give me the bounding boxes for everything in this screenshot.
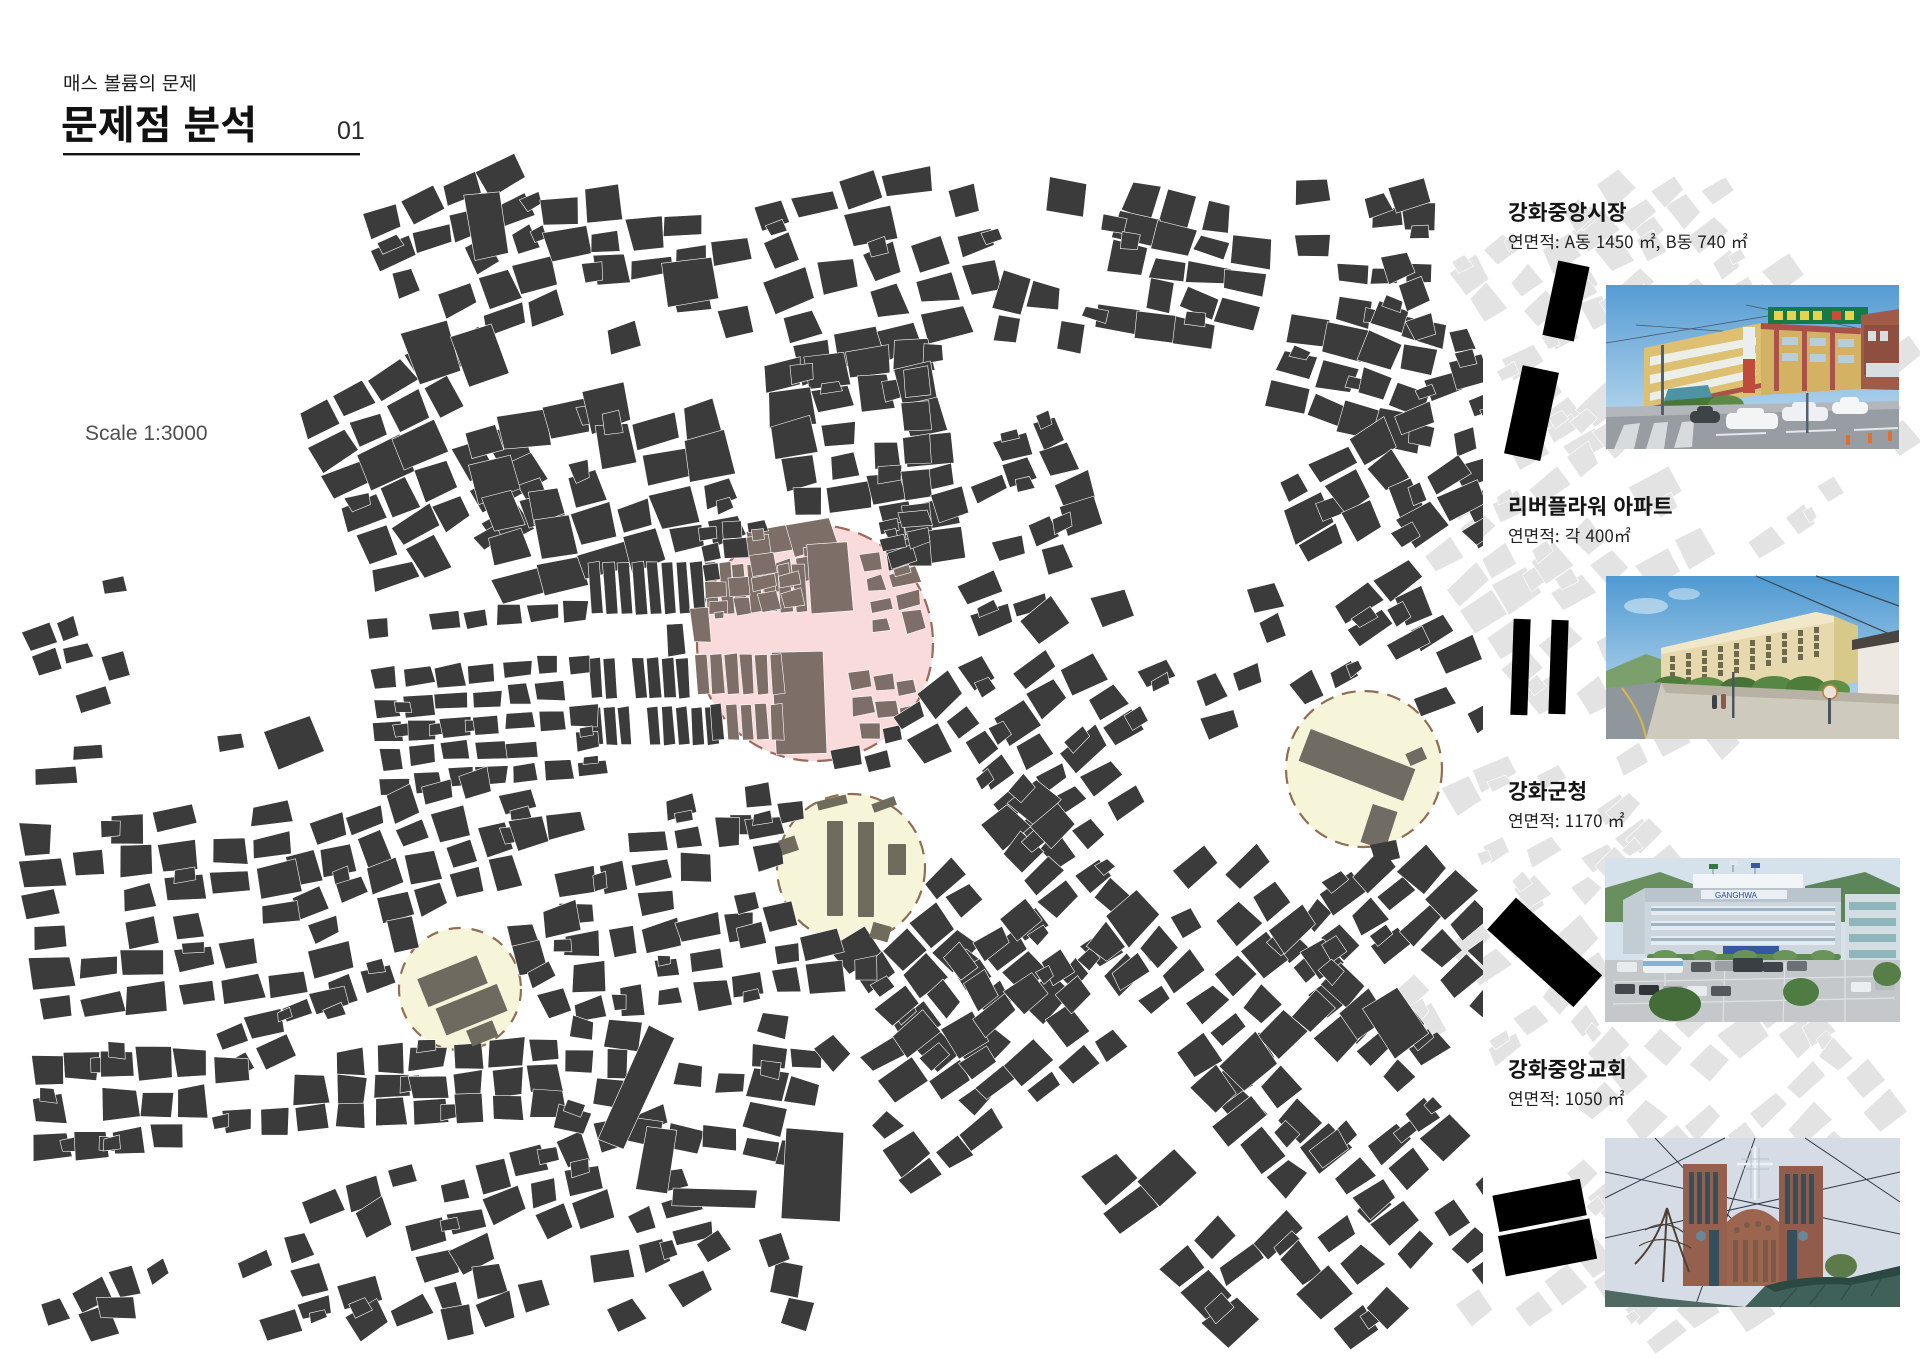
svg-text:Scale 1:3000: Scale 1:3000 <box>85 422 208 445</box>
svg-text:GANGHWA: GANGHWA <box>1715 891 1758 900</box>
svg-text:01: 01 <box>337 117 365 145</box>
